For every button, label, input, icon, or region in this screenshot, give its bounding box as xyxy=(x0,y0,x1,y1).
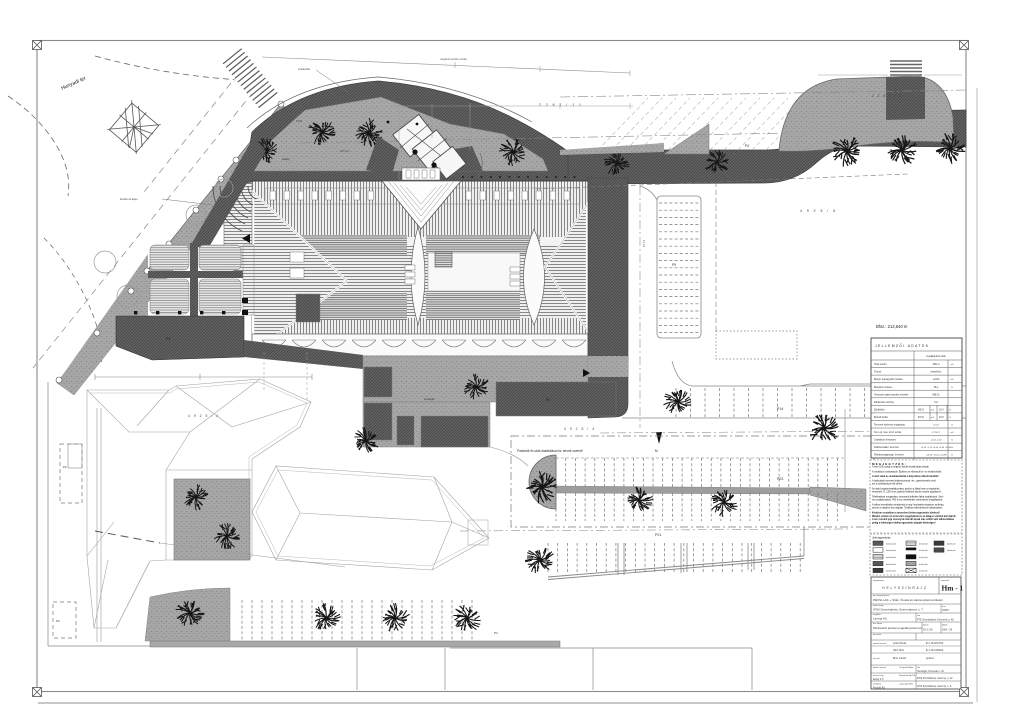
svg-text:4 9 2 5 / 6: 4 9 2 5 / 6 xyxy=(800,209,837,213)
svg-text:É-1 18-0159/04: É-1 18-0159/04 xyxy=(926,649,944,652)
svg-text:P21: P21 xyxy=(655,533,661,537)
svg-text:terv megnevezése: terv megnevezése xyxy=(873,594,890,597)
svg-text:É-1 18-0037/04: É-1 18-0037/04 xyxy=(926,642,944,645)
svg-text:burkolat jele: burkolat jele xyxy=(886,563,896,566)
svg-text:Lantog Kft.: Lantog Kft. xyxy=(873,617,888,621)
svg-text:burkolat jele: burkolat jele xyxy=(886,542,896,545)
svg-text:ves csatlakozások, 400 m-es ve: ves csatlakozások, 400 m-es vezetékeket … xyxy=(872,499,943,502)
svg-text:PÉCSI-LAK + SGÉ, Óvoda és isko: PÉCSI-LAK + SGÉ, Óvoda és iskola építés … xyxy=(873,597,943,602)
svg-text:P6: P6 xyxy=(546,398,550,402)
svg-text:23,8: 23,8 xyxy=(939,417,944,419)
svg-text:698,10: 698,10 xyxy=(932,394,940,396)
svg-text:Terepszint alatti beépítés mér: Terepszint alatti beépítés mértéke xyxy=(874,393,909,396)
svg-text:Az utak forgalomszabályozása,: Az utak forgalomszabályozása, azokon a f… xyxy=(872,488,940,491)
svg-text:ezt a burkolatokon kell előírn: ezt a burkolatokon kell előírni. xyxy=(872,483,903,486)
svg-text:kivitelező: kivitelező xyxy=(873,683,882,686)
svg-text:P23: P23 xyxy=(777,477,783,481)
svg-text:+0,22 +1,70 +4,54 +6,34 +10,97: +0,22 +1,70 +4,54 +6,34 +10,97 xyxy=(921,447,952,449)
svg-text:12,37: 12,37 xyxy=(933,425,939,427)
svg-text:meglévő kerítés vonala: meglévő kerítés vonala xyxy=(440,57,467,61)
svg-text:Csapod Gábor: Csapod Gábor xyxy=(899,666,913,669)
svg-text:építész: építész xyxy=(926,657,935,660)
svg-text:P2: P2 xyxy=(63,465,67,469)
svg-text:9700 Szombathely, Gefin Gy. u.: 9700 Szombathely, Gefin Gy. u. 22. xyxy=(917,677,953,680)
svg-text:Jelmagyarázat:: Jelmagyarázat: xyxy=(872,536,891,540)
svg-text:terület jele: terület jele xyxy=(919,570,928,573)
svg-text:A ház 0,05 pontja a meglévő ép: A ház 0,05 pontja a meglévő épület észak… xyxy=(872,466,930,469)
svg-text:épület jele: épület jele xyxy=(947,549,956,552)
svg-text:P4: P4 xyxy=(494,631,498,635)
svg-text:Házi Tibor: Házi Tibor xyxy=(893,649,904,652)
svg-text:MEGJEGYZÉS:: MEGJEGYZÉS: xyxy=(872,461,907,466)
svg-text:P4: P4 xyxy=(745,144,749,148)
svg-text:Parkolók és utak kialakítása k: Parkolók és utak kialakítása kiv. tervek… xyxy=(517,449,583,453)
svg-text:P2: P2 xyxy=(56,619,60,623)
svg-text:P1: P1 xyxy=(166,336,172,341)
svg-text:A terv szerinti jogi viszonyok: A terv szerinti jogi viszonyok ránk áll … xyxy=(872,518,955,521)
svg-text:A mért telek és munkaterületek: A mért telek és munkaterületek a helyszí… xyxy=(872,475,939,478)
svg-text:Eppig K.ft: Eppig K.ft xyxy=(873,678,884,681)
svg-text:burkolat jele: burkolat jele xyxy=(886,556,896,559)
svg-text:Szend du-lak Kft.: Szend du-lak Kft. xyxy=(899,674,916,677)
svg-text:terület jele: terület jele xyxy=(919,556,928,559)
svg-text:%: % xyxy=(949,409,951,411)
svg-text:burkolat jele: burkolat jele xyxy=(886,570,896,573)
svg-text:Burkolt felület: Burkolt felület xyxy=(874,416,888,419)
svg-text:A burkolatok tervezett lejtésv: A burkolatok tervezett lejtésviszonyai, … xyxy=(872,480,936,483)
svg-text:épület jele: épület jele xyxy=(947,542,956,545)
svg-text:%: % xyxy=(949,417,951,419)
svg-text:16,4: 16,4 xyxy=(939,409,944,411)
svg-text:m: m xyxy=(951,425,953,427)
svg-text:+0,05 -1,00: +0,05 -1,00 xyxy=(931,440,943,442)
svg-text:48,1: 48,1 xyxy=(934,387,939,389)
svg-text:4 9 2 5 / 4: 4 9 2 5 / 4 xyxy=(564,427,596,431)
svg-text:cukrászda: cukrászda xyxy=(298,67,310,71)
svg-text:m: m xyxy=(951,447,953,449)
svg-text:2004 - 06: 2004 - 06 xyxy=(942,629,953,632)
svg-text:vezető tervező: vezető tervező xyxy=(873,642,887,645)
svg-text:Minden szinten az út térszint: Minden szinten az út térszint szegélyekn… xyxy=(872,515,956,518)
svg-text:P14: P14 xyxy=(777,407,783,411)
svg-text:cím: cím xyxy=(917,667,921,669)
svg-text:kerítés és kapu: kerítés és kapu xyxy=(120,197,138,201)
svg-text:sétány: sétány xyxy=(282,157,290,161)
svg-text:Braz László: Braz László xyxy=(893,657,907,660)
svg-text:Zöldfelület: Zöldfelület xyxy=(874,408,885,411)
svg-text:vendéglő: vendéglő xyxy=(424,397,435,401)
svg-text:PTE Szombathely, Körmendi u. 4: PTE Szombathely, Körmendi u. 48. xyxy=(917,619,954,622)
svg-text:2 2 6 1 / 1 1: 2 2 6 1 / 1 1 xyxy=(539,103,583,107)
svg-text:M: M xyxy=(655,449,658,453)
svg-text:HELYSZÍNRAJZ: HELYSZÍNRAJZ xyxy=(882,586,927,590)
svg-text:szerint a meglévő terv alapján: szerint a meglévő terv alapján. Önállóan… xyxy=(872,507,943,510)
svg-text:Telekhatárok megtartása, szoms: Telekhatárok megtartása, szomszéd telkek… xyxy=(872,496,944,499)
svg-text:A telken vezetékeket szintjein: A telken vezetékeket szintjeinek a meg- … xyxy=(872,504,944,507)
svg-text:Beépít. legnagyobb mértéke: Beépít. legnagyobb mértéke xyxy=(874,378,903,381)
svg-text:pedig a lehetséges tilalma egy: pedig a lehetséges tilalma egyeztetés al… xyxy=(872,521,936,524)
svg-text:Beépítés mértéke: Beépítés mértéke xyxy=(874,386,893,389)
svg-text:Csatlakozó terepszint: Csatlakozó terepszint xyxy=(874,439,896,442)
svg-text:A vonatkozó szabványok. Építés: A vonatkozó szabványok. Építése az előír… xyxy=(872,471,942,474)
svg-text:megnevezés: megnevezés xyxy=(873,580,884,582)
svg-text:12,04: 12,04 xyxy=(642,240,646,247)
svg-text:297,6 m²: 297,6 m² xyxy=(340,150,350,153)
svg-text:tervező: tervező xyxy=(873,657,880,660)
svg-text:cím: cím xyxy=(917,615,921,617)
svg-text:terület jele: terület jele xyxy=(919,563,928,566)
svg-text:tervszám: tervszám xyxy=(873,633,881,636)
svg-text:JELLEMZŐI ADATOK: JELLEMZŐI ADATOK xyxy=(875,343,929,348)
svg-text:637,8: 637,8 xyxy=(918,417,924,419)
svg-text:+10,59 +13,10 +13,88: +10,59 +13,10 +13,88 xyxy=(925,455,947,457)
svg-text:Lükő Tamás: Lükő Tamás xyxy=(893,642,907,645)
svg-text:Telek terület: Telek terület xyxy=(874,363,887,366)
svg-text:Hm - 1: Hm - 1 xyxy=(942,584,964,593)
svg-text:Produkt Kft.: Produkt Kft. xyxy=(873,687,886,690)
svg-text:térszintek, ill. 2,50 m-es par: térszintek, ill. 2,50 m-es parkoló felül… xyxy=(872,491,942,494)
svg-text:felelős tervező: felelős tervező xyxy=(873,666,887,669)
svg-text:4925/7: 4925/7 xyxy=(942,609,950,612)
svg-text:2911,0: 2911,0 xyxy=(933,364,941,366)
svg-text:dátum: dátum xyxy=(923,624,929,627)
svg-text:482,9: 482,9 xyxy=(918,409,924,411)
svg-text:Padlóvonalak / tervezett: Padlóvonalak / tervezett xyxy=(874,446,899,449)
svg-text:4 9 2 5 / 2: 4 9 2 5 / 2 xyxy=(188,414,220,418)
svg-text:P9: P9 xyxy=(672,263,676,267)
svg-text:m: m xyxy=(951,440,953,442)
svg-text:+1910: +1910 xyxy=(933,379,940,381)
svg-text:2776,27: 2776,27 xyxy=(932,432,941,434)
svg-text:terület jele: terület jele xyxy=(919,549,928,552)
svg-text:Kérdéses esetekben a tervezőve: Kérdéses esetekben a tervezővel történt … xyxy=(872,512,940,515)
svg-text:9700 Szombathely, Gefin Gy. u.: 9700 Szombathely, Gefin Gy. u. 5. xyxy=(917,685,952,688)
svg-text:tervező cég: tervező cég xyxy=(873,674,883,677)
svg-text:hrsz.: hrsz. xyxy=(942,606,947,608)
svg-text:burkolat jele: burkolat jele xyxy=(886,549,896,552)
svg-text:34,50: 34,50 xyxy=(296,120,303,123)
svg-text:m: m xyxy=(951,455,953,457)
svg-text:Terv. ép. max. szint: terület: Terv. ép. max. szint: terület xyxy=(874,431,902,434)
svg-text:lépték: lépték xyxy=(942,624,947,627)
svg-text:terület jele: terület jele xyxy=(919,542,928,545)
svg-text:rajzszám: rajzszám xyxy=(941,580,949,582)
svg-text:2 2 6 1 / 4: 2 2 6 1 / 4 xyxy=(872,94,903,98)
svg-text:9700 Szombathely, Szentmártoni: 9700 Szombathely, Szentmártoni u. 7. xyxy=(873,608,924,612)
svg-text:04 3 178: 04 3 178 xyxy=(923,629,933,632)
svg-text:Capo-lland Kft.: Capo-lland Kft. xyxy=(899,683,914,686)
svg-text:terv fázisa: terv fázisa xyxy=(873,622,883,625)
svg-text:megállapított érték: megállapított érték xyxy=(926,355,946,358)
svg-text:településk.: településk. xyxy=(931,371,942,374)
svg-text:Párkánymagasság / tervezett: Párkánymagasság / tervezett xyxy=(874,454,904,457)
svg-text:Övezet: Övezet xyxy=(874,371,882,374)
svg-text:Tanológia, Temesvár u. 22.: Tanológia, Temesvár u. 22. xyxy=(917,670,945,673)
svg-text:Zöldterület mérőszj.: Zöldterület mérőszj. xyxy=(874,401,895,404)
svg-text:%: % xyxy=(951,387,953,389)
svg-text:Módosított építési engedélyezé: Módosított építési engedélyezési terv xyxy=(873,626,923,630)
svg-text:Bfsz.: 213,640 m: Bfsz.: 213,640 m xyxy=(876,324,908,329)
svg-text:Tervezett építmény magasság: Tervezett építmény magasság xyxy=(874,424,905,427)
